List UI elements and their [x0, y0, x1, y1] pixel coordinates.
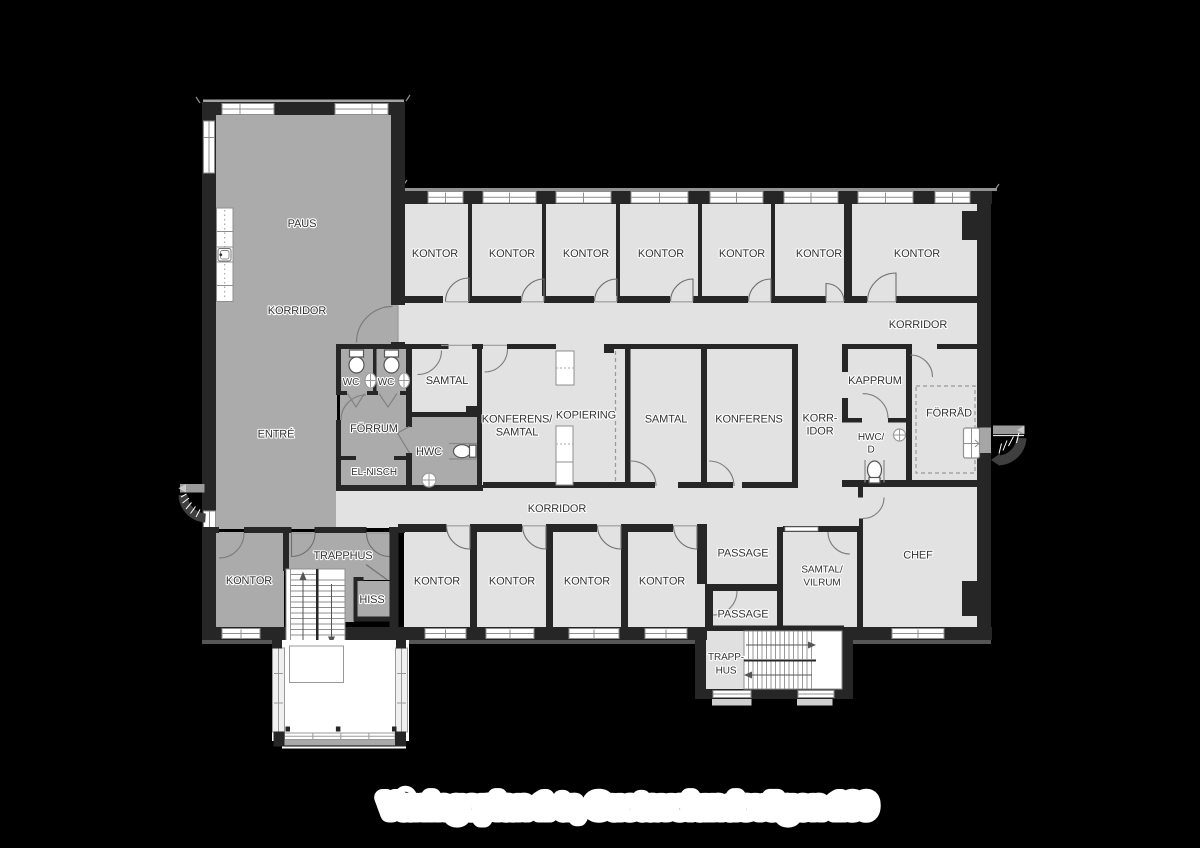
svg-text:PASSAGE: PASSAGE: [717, 548, 768, 560]
svg-text:SAMTAL: SAMTAL: [645, 414, 688, 426]
svg-text:KONTOR: KONTOR: [638, 248, 684, 260]
svg-text:ENTRÉ: ENTRÉ: [258, 428, 295, 441]
svg-text:PASSAGE: PASSAGE: [717, 609, 768, 621]
svg-text:KORR-: KORR-: [803, 413, 838, 425]
svg-text:D: D: [867, 445, 874, 456]
svg-text:SAMTAL: SAMTAL: [496, 427, 539, 439]
svg-text:SAMTAL/: SAMTAL/: [801, 565, 843, 576]
svg-text:KONTOR: KONTOR: [226, 575, 272, 587]
svg-text:KONTOR: KONTOR: [564, 576, 610, 588]
svg-text:KAPPRUM: KAPPRUM: [848, 375, 902, 387]
svg-text:EL-NISCH: EL-NISCH: [351, 467, 397, 478]
svg-text:WC: WC: [378, 377, 394, 388]
svg-text:CHEF: CHEF: [903, 550, 933, 562]
svg-text:FÖRRUM: FÖRRUM: [350, 422, 398, 435]
svg-text:KONFERENS: KONFERENS: [715, 414, 783, 426]
svg-text:TRAPP-: TRAPP-: [708, 652, 744, 663]
svg-text:KONTOR: KONTOR: [412, 248, 458, 260]
svg-text:KONTOR: KONTOR: [414, 576, 460, 588]
svg-text:IDOR: IDOR: [806, 426, 833, 438]
svg-text:KONTOR: KONTOR: [796, 248, 842, 260]
svg-text:KONFERENS/: KONFERENS/: [482, 414, 554, 426]
svg-text:KORRIDOR: KORRIDOR: [889, 319, 948, 331]
svg-text:SAMTAL: SAMTAL: [426, 375, 469, 387]
svg-text:KONTOR: KONTOR: [563, 248, 609, 260]
svg-text:TRAPPHUS: TRAPPHUS: [313, 550, 372, 562]
svg-text:KONTOR: KONTOR: [489, 248, 535, 260]
svg-text:HISS: HISS: [359, 594, 384, 606]
svg-text:Våningsplan 1 tr, Gustavslunds: Våningsplan 1 tr, Gustavslundsvägen 139: [382, 793, 873, 820]
svg-text:KONTOR: KONTOR: [639, 576, 685, 588]
svg-text:VILRUM: VILRUM: [803, 578, 840, 589]
svg-text:KORRIDOR: KORRIDOR: [528, 503, 587, 515]
svg-text:FÖRRÅD: FÖRRÅD: [926, 407, 972, 420]
svg-text:KONTOR: KONTOR: [719, 248, 765, 260]
svg-text:WC: WC: [343, 377, 359, 388]
svg-text:HWC/: HWC/: [858, 432, 885, 443]
svg-text:KORRIDOR: KORRIDOR: [268, 305, 327, 317]
svg-text:HWC: HWC: [416, 446, 442, 458]
svg-text:KONTOR: KONTOR: [894, 248, 940, 260]
svg-text:HUS: HUS: [716, 666, 737, 677]
svg-text:PAUS: PAUS: [288, 218, 317, 230]
svg-text:KOPIERING: KOPIERING: [556, 410, 616, 422]
svg-text:KONTOR: KONTOR: [489, 576, 535, 588]
